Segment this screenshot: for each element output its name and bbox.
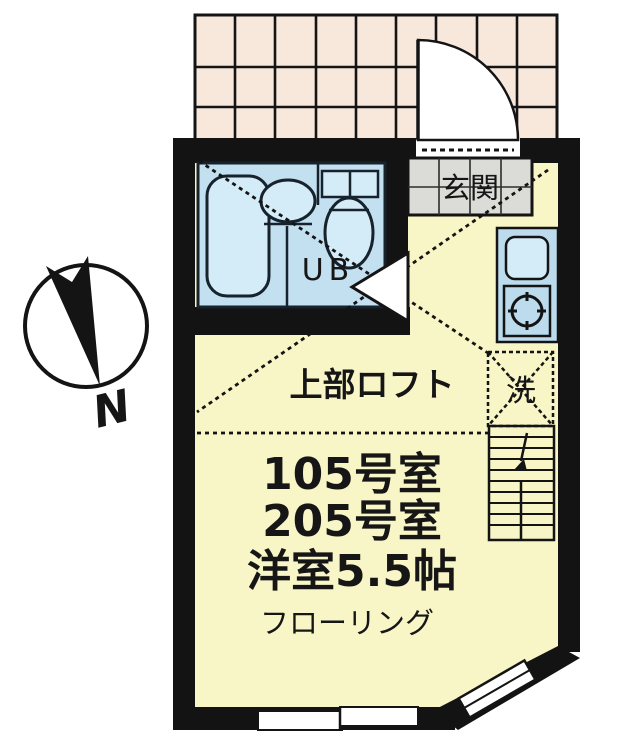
loft-label: 上部ロフト — [290, 365, 455, 404]
genkan-label: 玄関 — [441, 171, 499, 205]
flooring-label: フローリング — [260, 606, 434, 640]
washbasin-icon — [261, 180, 315, 222]
genkan-area: 玄関 — [408, 158, 532, 215]
ub-bottom-wall — [195, 307, 410, 335]
kitchen-sink-icon — [506, 237, 548, 279]
kitchen-unit — [497, 228, 558, 342]
floorplan-image: 玄関 UB — [0, 0, 619, 752]
bathtub-icon — [207, 176, 269, 296]
room-number-205: 205号室 — [262, 496, 442, 547]
washer-label: 洗 — [506, 374, 536, 409]
room-number-105: 105号室 — [262, 449, 442, 500]
bottom-window — [258, 707, 418, 730]
room-size-label: 洋室5.5帖 — [247, 546, 457, 597]
north-compass: N — [25, 256, 147, 439]
north-label: N — [88, 380, 136, 438]
floorplan-svg: 玄関 UB — [0, 0, 619, 752]
